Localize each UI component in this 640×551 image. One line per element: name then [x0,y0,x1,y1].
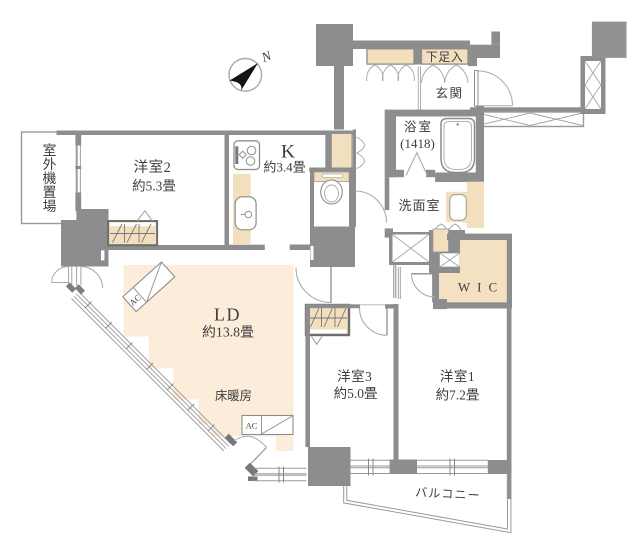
svg-text:約5.3畳: 約5.3畳 [132,179,176,194]
svg-text:WIC: WIC [458,280,504,295]
svg-text:洗面室: 洗面室 [398,198,440,213]
svg-text:洋室3: 洋室3 [337,368,372,384]
svg-text:床暖房: 床暖房 [215,388,252,403]
svg-text:LD: LD [214,305,241,325]
svg-text:約13.8畳: 約13.8畳 [202,325,254,340]
svg-text:玄関: 玄関 [435,86,463,101]
svg-text:室: 室 [43,142,57,158]
svg-text:洋室1: 洋室1 [440,368,475,384]
svg-text:約7.2畳: 約7.2畳 [436,388,480,403]
svg-text:洋室2: 洋室2 [134,159,172,176]
svg-text:約5.0畳: 約5.0畳 [334,386,378,401]
svg-text:下足入: 下足入 [426,50,464,64]
svg-text:置: 置 [43,185,57,200]
svg-text:AC: AC [246,421,258,431]
svg-text:機: 機 [43,171,57,186]
svg-text:場: 場 [43,199,57,214]
svg-text:(1418): (1418) [400,136,435,151]
svg-text:浴室: 浴室 [404,119,433,134]
svg-text:約3.4畳: 約3.4畳 [263,160,305,175]
svg-text:外: 外 [43,157,57,172]
